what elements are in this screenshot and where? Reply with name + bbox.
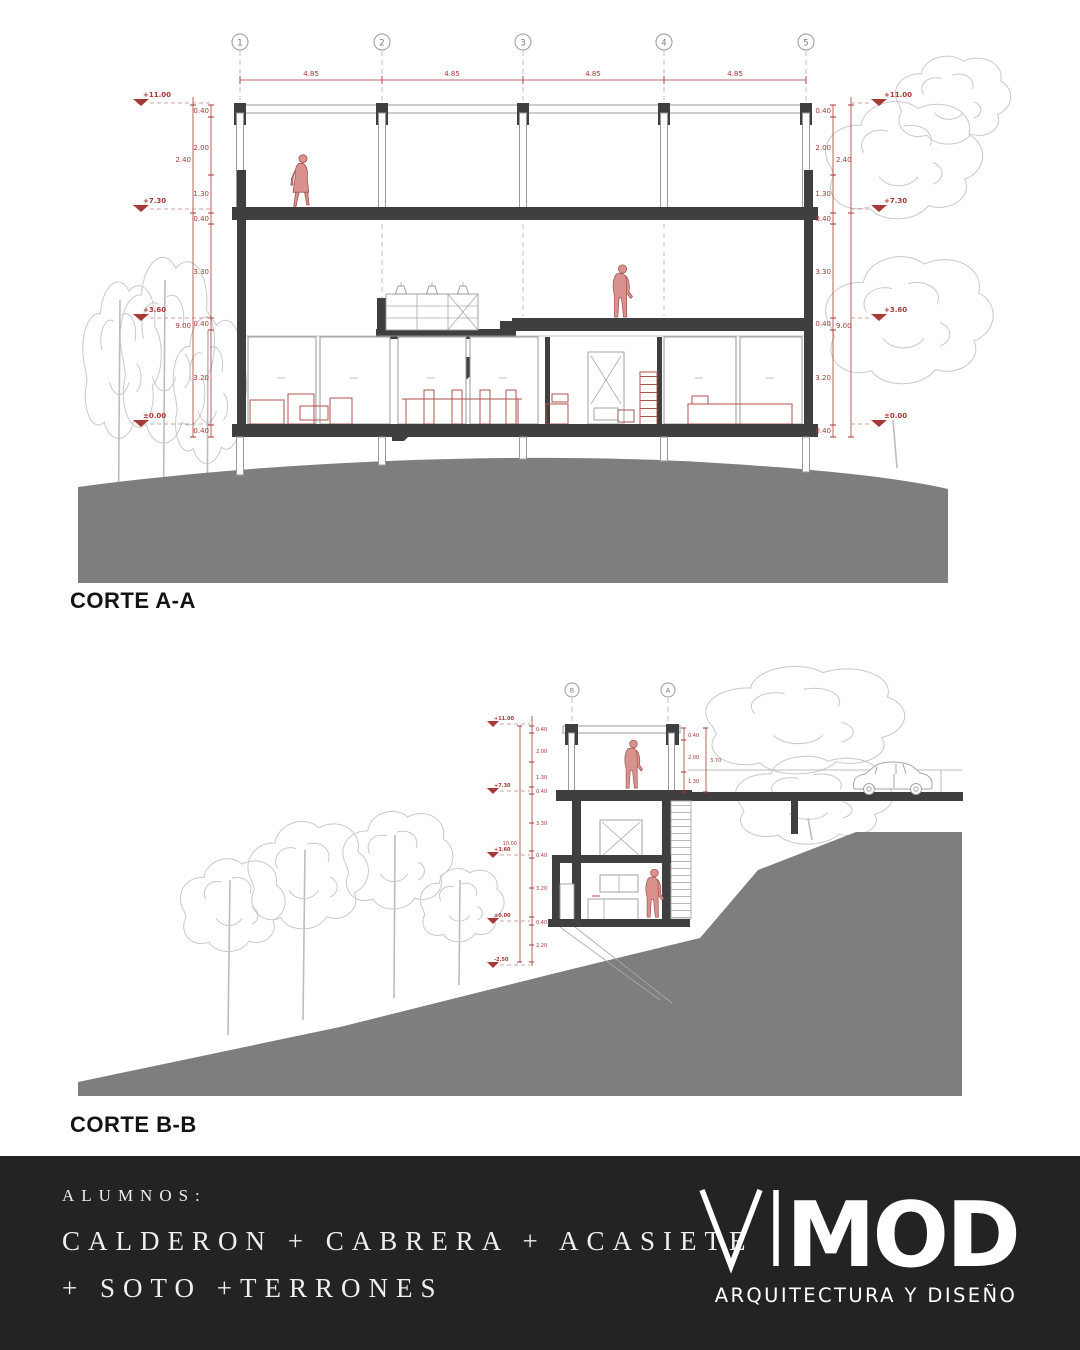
dim-label: 1.30 xyxy=(193,190,209,198)
dim-label: 0.40 xyxy=(536,920,547,926)
ground-aa xyxy=(78,458,948,583)
dim-label: 3.70 xyxy=(710,758,721,764)
dim-label: 0.40 xyxy=(536,727,547,733)
elevation-dims-left-bb: +11.00 +7.30 +3.60 ±0.00 -2.50 0.40 2.00… xyxy=(487,716,547,968)
person-in-kitchen xyxy=(646,869,664,917)
level-label: +7.30 xyxy=(884,197,907,205)
span-dim: 4.85 xyxy=(444,70,460,78)
dim-label: 10.00 xyxy=(503,841,517,847)
dim-label: 1.30 xyxy=(536,775,547,781)
dim-label: 2.40 xyxy=(175,156,191,164)
dim-label: 0.40 xyxy=(193,107,209,115)
grid-bubble-label: 1 xyxy=(237,39,242,49)
dim-label: 0.40 xyxy=(193,215,209,223)
dim-label: 2.00 xyxy=(815,144,831,152)
dim-label: 9.00 xyxy=(175,322,191,330)
span-dim: 4.85 xyxy=(303,70,319,78)
students-line-2: + SOTO +TERRONES xyxy=(62,1273,754,1304)
sections-drawing: 1 2 3 4 5 4.85 4.85 4.85 4.85 xyxy=(0,0,1080,1156)
dim-label: 1.30 xyxy=(688,779,699,785)
poster: 1 2 3 4 5 4.85 4.85 4.85 4.85 xyxy=(0,0,1080,1350)
dim-label: 0.40 xyxy=(815,427,831,435)
dim-label: 3.30 xyxy=(193,268,209,276)
corte-aa-label: CORTE A-A xyxy=(70,588,196,614)
alumnos-label: ALUMNOS: xyxy=(62,1186,754,1206)
dim-label: 3.30 xyxy=(815,268,831,276)
span-dim: 4.85 xyxy=(585,70,601,78)
building-section-aa xyxy=(232,103,818,475)
students-block: ALUMNOS: CALDERON + CABRERA + ACASIETE +… xyxy=(62,1186,754,1320)
corte-bb-label: CORTE B-B xyxy=(70,1112,197,1138)
students-line-1: CALDERON + CABRERA + ACASIETE xyxy=(62,1226,754,1257)
dim-label: 0.40 xyxy=(815,107,831,115)
dim-label: 0.40 xyxy=(193,427,209,435)
footer: ALUMNOS: CALDERON + CABRERA + ACASIETE +… xyxy=(0,1156,1080,1350)
dim-label: 3.20 xyxy=(193,374,209,382)
dim-label: 2.40 xyxy=(836,156,852,164)
kitchen-furniture xyxy=(560,875,638,920)
elevation-dims-right-aa: +11.00 +7.30 +3.60 ±0.00 0.40 2.00 1.30 … xyxy=(815,91,912,437)
level-label: +11.00 xyxy=(884,91,912,99)
level-label: +7.30 xyxy=(143,197,166,205)
dim-label: 2.00 xyxy=(193,144,209,152)
grid-bubble-label: 5 xyxy=(803,39,808,49)
level-label: +3.60 xyxy=(884,306,907,314)
dim-label: 2.20 xyxy=(536,943,547,949)
grid-bubble-label: 3 xyxy=(520,39,525,49)
logo-mod: MOD xyxy=(786,1183,1018,1288)
logo-tagline: ARQUITECTURA Y DISEÑO xyxy=(715,1284,1018,1307)
dim-label: 0.40 xyxy=(536,789,547,795)
person-on-deck xyxy=(625,740,643,788)
dim-label: 0.40 xyxy=(193,320,209,328)
grid-axes-aa: 1 2 3 4 5 xyxy=(232,34,814,104)
grid-bubble-label: A xyxy=(666,687,671,695)
dim-label: 3.20 xyxy=(536,886,547,892)
grid-bubble-label: B xyxy=(570,687,574,695)
dim-label: 2.00 xyxy=(536,749,547,755)
person-standing xyxy=(613,265,632,317)
level-label: +11.00 xyxy=(143,91,171,99)
dim-label: 0.40 xyxy=(536,853,547,859)
closet-furniture xyxy=(386,282,478,330)
dim-label: 0.40 xyxy=(815,215,831,223)
corte-aa-drawing: 1 2 3 4 5 4.85 4.85 4.85 4.85 xyxy=(78,34,1011,583)
grid-bubble-label: 2 xyxy=(379,39,384,49)
grid-bubble-label: 4 xyxy=(661,39,666,49)
level-label: ±0.00 xyxy=(143,412,166,420)
dim-label: 1.30 xyxy=(815,190,831,198)
span-dim: 4.85 xyxy=(727,70,743,78)
level-label: ±0.00 xyxy=(884,412,907,420)
dims-grid-a-bb: 0.40 2.00 1.30 3.70 xyxy=(681,728,721,792)
dim-label: 0.40 xyxy=(688,733,699,739)
level-label: +3.60 xyxy=(143,306,166,314)
person-walking xyxy=(291,155,309,207)
dim-label: 2.00 xyxy=(688,755,699,761)
dim-label: 9.00 xyxy=(836,322,852,330)
grid-axes-bb: B A xyxy=(565,683,675,725)
car xyxy=(853,762,932,795)
logo-vi xyxy=(702,1190,776,1266)
dim-label: 0.40 xyxy=(815,320,831,328)
corte-bb-drawing: B A xyxy=(78,666,963,1096)
vimod-logo: MOD ARQUITECTURA Y DISEÑO xyxy=(694,1180,1026,1330)
dim-label: 3.30 xyxy=(536,821,547,827)
dim-label: 3.20 xyxy=(815,374,831,382)
